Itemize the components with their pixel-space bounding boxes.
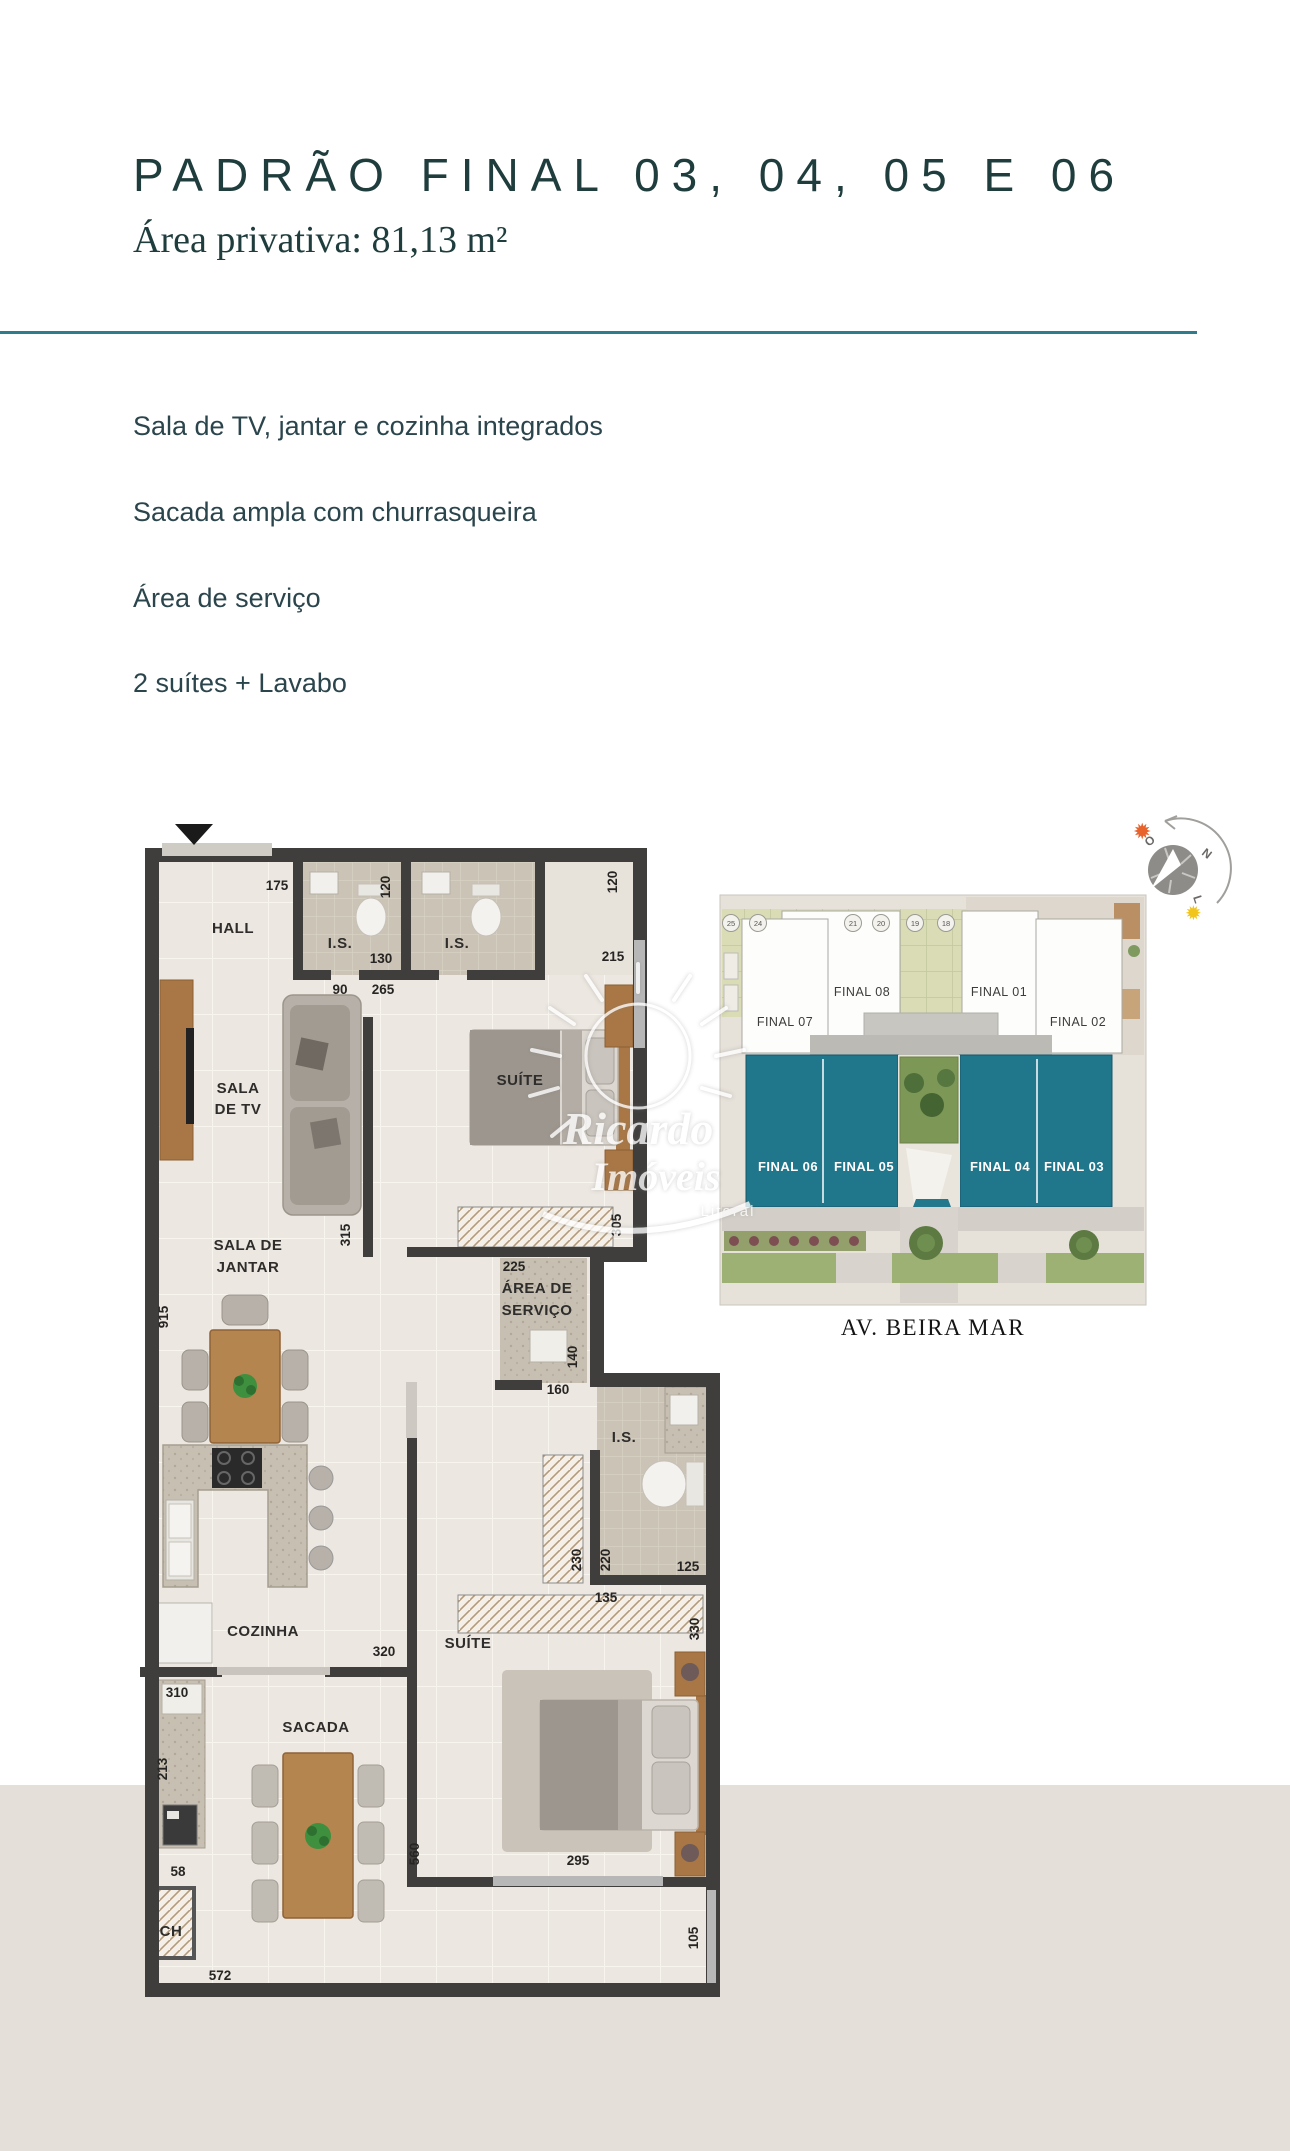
laundry-tank: [530, 1330, 567, 1362]
room-label-is2: I.S.: [445, 935, 470, 952]
stool: [309, 1546, 333, 1570]
dim-265: 265: [372, 982, 395, 997]
dim-225: 225: [503, 1259, 526, 1274]
dim-305: 305: [609, 1213, 624, 1236]
dim-220: 220: [598, 1549, 613, 1572]
balcony-rail-window: [707, 1890, 716, 1983]
stool: [309, 1506, 333, 1530]
room-label-sacada: SACADA: [282, 1719, 349, 1736]
room-label-jantar-1: SALA DE: [214, 1237, 283, 1254]
label-final-07: FINAL 07: [757, 1015, 813, 1029]
suite2-wardrobe: [458, 1595, 703, 1633]
page-title: PADRÃO FINAL 03, 04, 05 E 06: [133, 148, 1253, 202]
room-label-lavabo: I.S.: [612, 1429, 637, 1446]
dim-330: 330: [687, 1618, 702, 1641]
label-final-08: FINAL 08: [834, 985, 890, 999]
label-final-05: FINAL 05: [834, 1159, 894, 1174]
parking-25: 25: [727, 919, 735, 928]
planter-foliage: [937, 1069, 955, 1087]
compass-north: N: [1199, 845, 1214, 861]
suite2-bed: [502, 1652, 708, 1876]
room-label-is1: I.S.: [328, 935, 353, 952]
parking-18: 18: [942, 919, 950, 928]
building-final-02: [1036, 919, 1122, 1053]
dim-125: 125: [677, 1559, 700, 1574]
flower: [809, 1236, 819, 1246]
label-final-03: FINAL 03: [1044, 1159, 1104, 1174]
suite1-wardrobe: [458, 1207, 613, 1247]
room-label-sala-tv-1: SALA: [217, 1080, 260, 1097]
dim-215: 215: [602, 949, 625, 964]
dim-295: 295: [567, 1853, 590, 1868]
dim-135: 135: [595, 1590, 618, 1605]
dim-560: 560: [407, 1843, 422, 1866]
dim-160: 160: [547, 1382, 570, 1397]
dim-315: 315: [338, 1223, 353, 1246]
dim-105: 105: [686, 1926, 701, 1949]
site-plan: 25 24 21 20 19 18 FINAL 08 FINAL 07 FINA…: [718, 893, 1148, 1307]
lawn-gap-walk: [998, 1253, 1046, 1283]
street-label: AV. BEIRA MAR: [718, 1315, 1148, 1341]
label-final-06: FINAL 06: [758, 1159, 818, 1174]
room-label-servico-2: SERVIÇO: [502, 1302, 573, 1319]
parking-21: 21: [849, 919, 857, 928]
dim-58: 58: [170, 1864, 186, 1879]
flower: [829, 1236, 839, 1246]
flower: [729, 1236, 739, 1246]
parking-20: 20: [877, 919, 885, 928]
fridge: [158, 1603, 212, 1663]
core-band: [810, 1035, 1052, 1057]
balcony-sliding-door: [217, 1667, 330, 1675]
accent-divider: [0, 331, 1197, 334]
dim-320: 320: [373, 1644, 396, 1659]
balcony-table: [252, 1753, 384, 1922]
site-plan-svg: 25 24 21 20 19 18 FINAL 08 FINAL 07 FINA…: [718, 893, 1148, 1307]
tv-panel: [160, 980, 194, 1160]
parking-24: 24: [754, 919, 762, 928]
suite1-nightstand: [605, 1150, 633, 1190]
dim-120b: 120: [605, 871, 620, 894]
floor-plan-svg: HALL I.S. I.S. SALA DE TV SUÍTE SALA DE …: [100, 790, 755, 2030]
entrance-arrow-icon: [175, 824, 213, 845]
lounge-item: [724, 985, 738, 1011]
feature-item-suites: 2 suítes + Lavabo: [133, 668, 347, 699]
suite1-cabinet: [605, 985, 633, 1047]
dim-140: 140: [565, 1346, 580, 1369]
floor-plan: HALL I.S. I.S. SALA DE TV SUÍTE SALA DE …: [100, 790, 755, 2030]
dim-310: 310: [166, 1685, 189, 1700]
flower: [849, 1236, 859, 1246]
compass-svg: ✹ ✹ O N L: [1125, 805, 1245, 930]
dim-915: 915: [156, 1305, 171, 1328]
deck-item: [1120, 989, 1140, 1019]
tree: [917, 1234, 935, 1252]
feature-item-laundry: Área de serviço: [133, 583, 321, 614]
planter-foliage: [920, 1093, 944, 1117]
sunrise-icon: ✹: [1185, 903, 1202, 925]
feature-item-balcony: Sacada ampla com churrasqueira: [133, 497, 537, 528]
flower: [769, 1236, 779, 1246]
room-label-cozinha: COZINHA: [227, 1623, 299, 1640]
dim-572: 572: [209, 1968, 232, 1983]
feature-item-living: Sala de TV, jantar e cozinha integrados: [133, 411, 603, 442]
dim-130: 130: [370, 951, 393, 966]
room-label-suite1: SUÍTE: [497, 1072, 544, 1089]
hall-sliding-door: [406, 1382, 417, 1438]
dim-90: 90: [332, 982, 347, 997]
label-final-01: FINAL 01: [971, 985, 1027, 999]
flower: [749, 1236, 759, 1246]
label-final-04: FINAL 04: [970, 1159, 1030, 1174]
shrub: [1128, 945, 1140, 957]
room-label-ch: CH: [160, 1923, 183, 1940]
sofa: [283, 995, 361, 1215]
suite1-window: [634, 940, 645, 1048]
room-label-jantar-2: JANTAR: [217, 1259, 280, 1276]
entrance-door: [162, 843, 272, 856]
room-label-sala-tv-2: DE TV: [215, 1101, 262, 1118]
suite2-window: [493, 1876, 663, 1886]
parking-19: 19: [911, 919, 919, 928]
lounge-item: [724, 953, 738, 979]
label-final-02: FINAL 02: [1050, 1015, 1106, 1029]
room-label-hall: HALL: [212, 920, 254, 937]
flower: [789, 1236, 799, 1246]
compass: ✹ ✹ O N L: [1125, 805, 1245, 930]
lawn-gap-walk: [836, 1253, 892, 1283]
planter-foliage: [904, 1073, 924, 1093]
dim-120a: 120: [378, 876, 393, 899]
dim-230: 230: [569, 1549, 584, 1572]
dim-175: 175: [266, 878, 289, 893]
room-label-servico-1: ÁREA DE: [502, 1280, 572, 1297]
building-final-07: [742, 919, 828, 1053]
tree: [1076, 1237, 1092, 1253]
stool: [309, 1466, 333, 1490]
page-subtitle: Área privativa: 81,13 m²: [133, 218, 507, 262]
room-label-suite2: SUÍTE: [445, 1635, 492, 1652]
dim-213: 213: [155, 1757, 170, 1780]
